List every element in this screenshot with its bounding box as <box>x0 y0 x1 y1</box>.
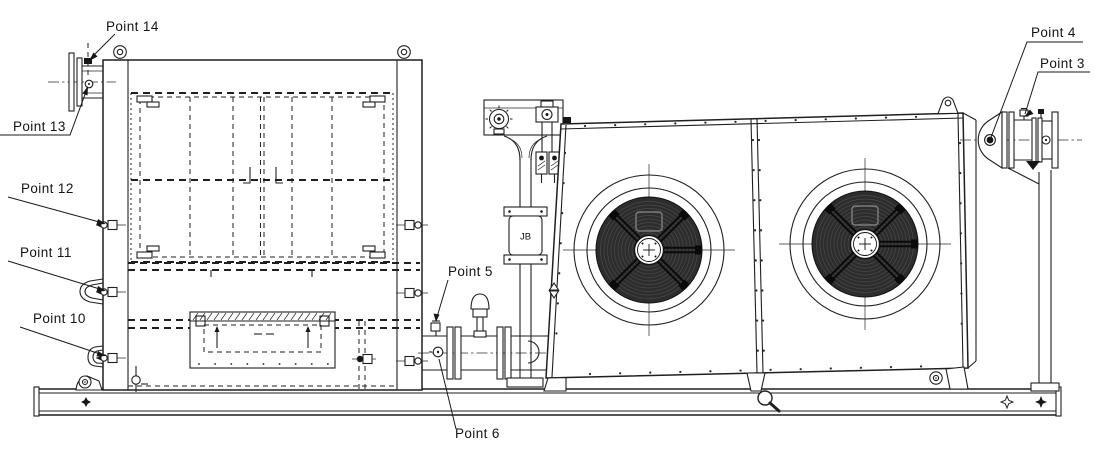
lifting-eyebolt-icon <box>114 46 127 59</box>
point6-fitting <box>429 347 443 357</box>
stand-baseplate <box>507 378 543 387</box>
junction-box: JB <box>504 207 547 264</box>
lifting-eyebolt-icon <box>398 46 411 59</box>
roller-wheel <box>76 376 102 390</box>
point13-fitting <box>85 80 93 88</box>
lifting-lug-icon <box>938 97 958 114</box>
right-nozzle <box>960 109 1082 392</box>
label-point-13: Point 13 <box>13 119 66 134</box>
label-point-11: Point 11 <box>20 245 72 260</box>
level-transmitter <box>536 101 560 183</box>
air-cooler <box>544 97 976 391</box>
louver-hatch <box>190 312 335 368</box>
meter-pipe-spool <box>418 294 560 379</box>
label-point-3: Point 3 <box>1040 56 1085 71</box>
label-point-6: Point 6 <box>455 426 500 441</box>
cooler-foot <box>544 378 566 391</box>
point5-fitting <box>431 321 440 336</box>
magnifier-icon <box>758 391 779 411</box>
label-point-12: Point 12 <box>21 181 74 196</box>
skid-diamond-icon <box>1035 396 1047 408</box>
anchor-star-icon <box>81 397 91 407</box>
flow-meter-valve <box>471 294 489 337</box>
nozzle-support-column <box>1031 170 1059 391</box>
drawing-canvas: JB <box>0 0 1100 461</box>
skid-diamond-icon <box>1001 396 1013 408</box>
tank-enclosure <box>76 46 428 392</box>
label-point-5: Point 5 <box>448 264 493 279</box>
label-point-14: Point 14 <box>106 19 159 34</box>
cooler-roller <box>930 367 968 389</box>
label-point-10: Point 10 <box>33 311 86 326</box>
pipe-elbow-arc <box>528 341 539 363</box>
label-point-4: Point 4 <box>1031 25 1076 40</box>
equipment-elevation-drawing: JB <box>0 0 1100 461</box>
junction-box-label: JB <box>520 232 531 243</box>
